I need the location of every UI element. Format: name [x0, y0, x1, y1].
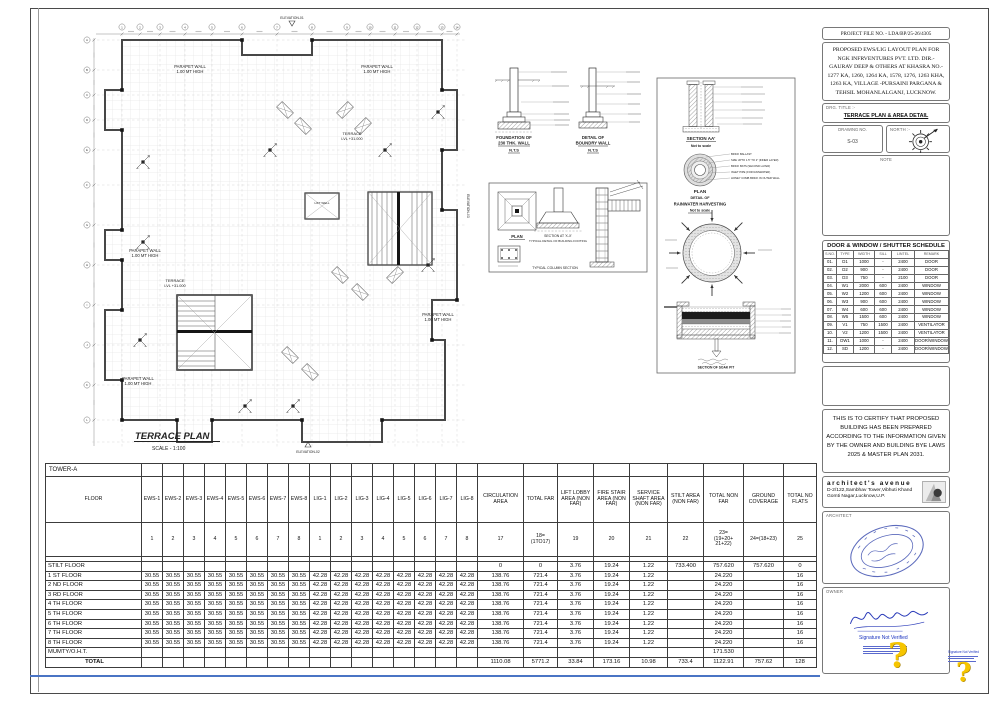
schedule-cell: 03. [824, 274, 837, 282]
unit-col-header: LIG-6 [415, 477, 436, 523]
unit-area-cell: 30.55 [142, 609, 163, 619]
unit-area-cell: 42.28 [331, 619, 352, 629]
unit-area-cell: 30.55 [184, 629, 205, 639]
unit-area-cell: 42.28 [331, 609, 352, 619]
note-label: NOTE [823, 157, 949, 162]
unit-col-header: EWS-3 [184, 477, 205, 523]
schedule-cell: 2400 [892, 314, 915, 322]
unit-area-cell: 30.55 [268, 590, 289, 600]
floor-name-cell: 8 TH FLOOR [46, 638, 142, 648]
svg-text:BRICK BALLAST: BRICK BALLAST [731, 152, 752, 156]
certification-box: THIS IS TO CERTIFY THAT PROPOSED BUILDIN… [822, 409, 950, 473]
unit-area-cell: 30.55 [205, 638, 226, 648]
drawing-no-box: DRAWING NO. S-03 [822, 125, 883, 153]
column-number-row: 12345678123456781718=(1TO17)1920212223=(… [46, 523, 817, 557]
summary-area-cell: 1.22 [630, 638, 668, 648]
unit-area-cell: 30.55 [268, 629, 289, 639]
summary-area-cell: 16 [784, 571, 817, 581]
summary-area-cell: 721.4 [524, 581, 558, 591]
summary-area-cell: 19.24 [594, 590, 630, 600]
unit-area-cell: 42.28 [436, 619, 457, 629]
unit-area-cell [415, 562, 436, 572]
summary-area-cell [668, 581, 704, 591]
schedule-cell: SD [837, 345, 854, 353]
unit-area-cell: 30.55 [268, 619, 289, 629]
summary-area-cell: 1.22 [630, 581, 668, 591]
summary-area-cell: 19.24 [594, 629, 630, 639]
schedule-cell: DOOR [915, 266, 949, 274]
summary-area-cell: 138.76 [478, 590, 524, 600]
floor-name-cell: 1 ST FLOOR [46, 571, 142, 581]
unit-area-cell: 30.55 [142, 600, 163, 610]
unit-area-cell: 30.55 [163, 619, 184, 629]
unit-area-cell: 42.28 [352, 571, 373, 581]
unit-area-cell: 42.28 [457, 590, 478, 600]
unit-area-cell: 30.55 [226, 629, 247, 639]
summary-area-cell: 173.16 [594, 657, 630, 667]
unit-col-number: 8 [289, 523, 310, 557]
project-description-box: PROPOSED EWS/LIG LAYOUT PLAN FOR NGK INF… [822, 42, 950, 101]
schedule-row: 02.D2900-2400DOOR [824, 266, 949, 274]
unit-area-cell: 42.28 [352, 629, 373, 639]
unit-area-cell [436, 657, 457, 667]
summary-area-cell [668, 638, 704, 648]
summary-area-cell [668, 619, 704, 629]
unit-area-cell: 42.28 [373, 629, 394, 639]
unit-area-cell [436, 562, 457, 572]
floor-name-cell: 4 TH FLOOR [46, 600, 142, 610]
unit-area-cell: 30.55 [226, 600, 247, 610]
area-col-header: TOTAL NON FAR [704, 477, 744, 523]
svg-text:DETAIL OF: DETAIL OF [582, 135, 605, 140]
unit-area-cell [184, 562, 205, 572]
unit-area-cell: 42.28 [310, 609, 331, 619]
summary-area-cell [478, 648, 524, 658]
unit-area-cell: 30.55 [289, 571, 310, 581]
summary-area-cell: 138.76 [478, 609, 524, 619]
area-row: MUMTY/O.H.T.171.530 [46, 648, 817, 658]
unit-area-cell: 30.55 [226, 638, 247, 648]
summary-area-cell [668, 629, 704, 639]
rainwater-harvesting-panel: SECTION AA' Not to scale BRICK BALLAST S… [657, 78, 795, 373]
unit-col-header: LIG-3 [352, 477, 373, 523]
schedule-cell: 1500 [875, 322, 892, 330]
summary-area-cell: 24.220 [704, 638, 744, 648]
unit-area-cell [205, 648, 226, 658]
unit-area-cell: 30.55 [289, 629, 310, 639]
summary-area-cell: 16 [784, 581, 817, 591]
schedule-cell: 2400 [892, 298, 915, 306]
unit-area-cell: 42.28 [457, 638, 478, 648]
summary-area-cell [744, 571, 784, 581]
svg-text:1.00 MT HIGH: 1.00 MT HIGH [125, 381, 152, 386]
area-row: 8 TH FLOOR30.5530.5530.5530.5530.5530.55… [46, 638, 817, 648]
project-description: PROPOSED EWS/LIG LAYOUT PLAN FOR NGK INF… [823, 43, 949, 97]
unit-area-cell: 30.55 [163, 629, 184, 639]
unit-area-cell [457, 562, 478, 572]
summary-area-cell: 3.76 [558, 638, 594, 648]
unit-area-cell: 30.55 [205, 619, 226, 629]
summary-area-cell: 1.22 [630, 590, 668, 600]
unit-area-cell: 30.55 [226, 581, 247, 591]
unit-area-cell: 30.55 [226, 590, 247, 600]
unit-area-cell: 30.55 [289, 581, 310, 591]
unit-area-cell: 30.55 [184, 571, 205, 581]
unit-area-cell [247, 657, 268, 667]
summary-area-cell [524, 648, 558, 658]
summary-area-cell [668, 571, 704, 581]
summary-area-cell: 16 [784, 619, 817, 629]
summary-area-cell: 16 [784, 600, 817, 610]
column-header-row: FLOOREWS-1EWS-2EWS-3EWS-4EWS-5EWS-6EWS-7… [46, 477, 817, 523]
svg-text:PLAN: PLAN [511, 234, 522, 239]
schedule-cell: 1000 [854, 337, 875, 345]
project-file-box: PROJECT FILE NO. - LDA/BP/25-26/4305 [822, 27, 950, 40]
floor-name-cell: 7 TH FLOOR [46, 629, 142, 639]
schedule-row: 05.W212006002400WINDOW [824, 290, 949, 298]
summary-area-cell: 138.76 [478, 600, 524, 610]
area-row: 6 TH FLOOR30.5530.5530.5530.5530.5530.55… [46, 619, 817, 629]
unit-area-cell: 42.28 [436, 638, 457, 648]
unit-area-cell: 30.55 [247, 629, 268, 639]
unit-area-cell: 42.28 [331, 600, 352, 610]
unit-area-cell: 30.55 [268, 581, 289, 591]
summary-area-cell: 16 [784, 590, 817, 600]
tower-label: TOWER-A [46, 464, 142, 477]
schedule-cell: D1 [837, 258, 854, 266]
unit-area-cell: 42.28 [436, 590, 457, 600]
schedule-cell: W5 [837, 314, 854, 322]
schedule-cell: 04. [824, 282, 837, 290]
schedule-cell: 600 [854, 306, 875, 314]
summary-area-cell: 757.62 [744, 657, 784, 667]
svg-text:BOUNDRY WALL: BOUNDRY WALL [576, 141, 611, 146]
svg-text:RAINWATER HARVESTING: RAINWATER HARVESTING [674, 202, 726, 207]
floor-name-cell: 6 TH FLOOR [46, 619, 142, 629]
unit-area-cell [373, 562, 394, 572]
area-col-number: 17 [478, 523, 524, 557]
unit-area-cell: 42.28 [457, 619, 478, 629]
svg-text:E: E [86, 148, 88, 152]
unit-area-cell: 30.55 [268, 609, 289, 619]
area-col-number: 25 [784, 523, 817, 557]
schedule-cell: 02. [824, 266, 837, 274]
area-row: 4 TH FLOOR30.5530.5530.5530.5530.5530.55… [46, 600, 817, 610]
svg-text:TERRACE: TERRACE [165, 278, 184, 283]
summary-area-cell: 757.620 [744, 562, 784, 572]
svg-text:1.00 MT HIGH: 1.00 MT HIGH [132, 253, 159, 258]
unit-area-cell: 42.28 [394, 600, 415, 610]
unit-area-cell: 42.28 [352, 609, 373, 619]
unit-area-cell: 42.28 [394, 638, 415, 648]
unit-area-cell: 42.28 [415, 600, 436, 610]
summary-area-cell: 138.76 [478, 581, 524, 591]
summary-area-cell [744, 619, 784, 629]
svg-text:LVL +31.000: LVL +31.000 [341, 137, 362, 141]
summary-area-cell: 0 [524, 562, 558, 572]
area-col-header: GROUND COVERAGE [744, 477, 784, 523]
unit-area-cell [268, 657, 289, 667]
architect-box: ARCHITECT [822, 511, 950, 584]
summary-area-cell [668, 600, 704, 610]
unit-area-cell [331, 657, 352, 667]
unit-area-cell [352, 657, 373, 667]
schedule-cell: 2400 [892, 345, 915, 353]
unit-area-cell: 30.55 [163, 638, 184, 648]
summary-area-cell: 1.22 [630, 619, 668, 629]
unit-area-cell: 42.28 [331, 629, 352, 639]
unit-col-number: 8 [457, 523, 478, 557]
unit-area-cell: 30.55 [184, 581, 205, 591]
unit-area-cell: 42.28 [310, 571, 331, 581]
svg-text:1.00 MT HIGH: 1.00 MT HIGH [364, 69, 391, 74]
certification-text: THIS IS TO CERTIFY THAT PROPOSED BUILDIN… [823, 410, 949, 460]
schedule-cell: 1000 [854, 258, 875, 266]
unit-area-cell [142, 657, 163, 667]
svg-text:1.00 MT HIGH: 1.00 MT HIGH [177, 69, 204, 74]
schedule-row: 10.V2120015002400VENTILATOR [824, 329, 949, 337]
summary-area-cell: 19.24 [594, 600, 630, 610]
schedule-cell: 2400 [892, 329, 915, 337]
unit-col-number: 6 [247, 523, 268, 557]
unit-area-cell: 42.28 [457, 629, 478, 639]
digital-signature-question-icon: ? [888, 636, 908, 676]
summary-area-cell [744, 638, 784, 648]
plan-title-group: TERRACE PLAN SCALE - 1:100 [134, 431, 220, 452]
unit-area-cell: 30.55 [289, 609, 310, 619]
lift-well: LIFT WELL [305, 193, 339, 219]
schedule-cell: 2400 [892, 306, 915, 314]
floor-col-header: FLOOR [46, 477, 142, 523]
area-col-header: STILT AREA (NON FAR) [668, 477, 704, 523]
unit-area-cell [163, 648, 184, 658]
unit-area-cell: 42.28 [394, 629, 415, 639]
unit-area-cell: 30.55 [205, 600, 226, 610]
svg-text:HONEY COMB BRICK IN OUTER WALL: HONEY COMB BRICK IN OUTER WALL [731, 176, 780, 180]
schedule-cell: 600 [875, 290, 892, 298]
summary-area-cell [744, 609, 784, 619]
unit-area-cell: 30.55 [142, 590, 163, 600]
schedule-header-row: S.NO.TYPEWIDTHSILLLINTELREMARK [824, 251, 949, 259]
svg-text:A: A [86, 38, 88, 42]
project-file-no: PROJECT FILE NO. - LDA/BP/25-26/4305 [823, 28, 949, 40]
schedule-cell: 600 [875, 306, 892, 314]
summary-area-cell: 24.220 [704, 590, 744, 600]
area-row: STILT FLOOR003.7619.241.22733.400757.620… [46, 562, 817, 572]
schedule-cell: - [875, 337, 892, 345]
schedule-cell: 1200 [854, 290, 875, 298]
area-col-number: 22 [668, 523, 704, 557]
summary-area-cell: 16 [784, 638, 817, 648]
area-col-number: 24=(18+23) [744, 523, 784, 557]
summary-area-cell: 19.24 [594, 562, 630, 572]
unit-area-cell [226, 562, 247, 572]
summary-area-cell: 24.220 [704, 609, 744, 619]
architect-stamp [837, 520, 937, 582]
unit-area-cell: 42.28 [415, 619, 436, 629]
unit-col-number: 7 [268, 523, 289, 557]
schedule-cell: 07. [824, 306, 837, 314]
unit-col-header: LIG-8 [457, 477, 478, 523]
unit-area-cell: 42.28 [457, 600, 478, 610]
schedule-cell: - [875, 266, 892, 274]
drg-title-label: DRG. TITLE :- [826, 105, 855, 110]
unit-col-header: EWS-5 [226, 477, 247, 523]
schedule-row: 09.V175015002400VENTILATOR [824, 322, 949, 330]
schedule-cell: DOOR [915, 274, 949, 282]
unit-area-cell: 42.28 [310, 600, 331, 610]
unit-area-cell: 30.55 [184, 638, 205, 648]
sheet-bottom-rule [30, 675, 820, 677]
svg-text:TYPICAL DETAIL OF BUILDING FOO: TYPICAL DETAIL OF BUILDING FOOTING [529, 239, 588, 243]
unit-area-cell: 30.55 [268, 571, 289, 581]
summary-area-cell: 171.530 [704, 648, 744, 658]
schedule-cell: 05. [824, 290, 837, 298]
unit-area-cell: 30.55 [247, 581, 268, 591]
unit-area-cell: 30.55 [163, 609, 184, 619]
north-compass-icon [905, 127, 945, 153]
unit-area-cell: 42.28 [415, 609, 436, 619]
unit-area-cell: 42.28 [373, 638, 394, 648]
unit-area-cell: 42.28 [310, 619, 331, 629]
drawing-no-value: S-03 [823, 139, 882, 145]
summary-area-cell [558, 648, 594, 658]
unit-area-cell [205, 657, 226, 667]
unit-area-cell: 42.28 [310, 629, 331, 639]
elevation-01-label: ELEVATION-01 [280, 16, 304, 20]
schedule-cell: 600 [875, 314, 892, 322]
unit-area-cell: 30.55 [268, 600, 289, 610]
summary-area-cell: 733.400 [668, 562, 704, 572]
summary-area-cell: 5771.2 [524, 657, 558, 667]
unit-area-cell: 42.28 [352, 600, 373, 610]
area-col-number: 23=(19+20+21+22) [704, 523, 744, 557]
area-row: 7 TH FLOOR30.5530.5530.5530.5530.5530.55… [46, 629, 817, 639]
unit-area-cell: 30.55 [184, 609, 205, 619]
unit-col-number: 5 [394, 523, 415, 557]
drawing-no-label: DRAWING NO. [823, 127, 882, 132]
unit-col-number: 4 [373, 523, 394, 557]
unit-area-cell: 42.28 [373, 590, 394, 600]
unit-area-cell [184, 657, 205, 667]
summary-area-cell: 733.4 [668, 657, 704, 667]
summary-area-cell [594, 648, 630, 658]
schedule-cell: 750 [854, 274, 875, 282]
schedule-cell: 2400 [892, 258, 915, 266]
summary-area-cell [744, 600, 784, 610]
schedule-cell: WINDOW [915, 298, 949, 306]
schedule-cell: VENTILATOR [915, 322, 949, 330]
unit-area-cell: 30.55 [247, 590, 268, 600]
schedule-row: 08.W515006002400WINDOW [824, 314, 949, 322]
summary-area-cell: 3.76 [558, 619, 594, 629]
unit-area-cell: 30.55 [205, 581, 226, 591]
drg-title-box: DRG. TITLE :- TERRACE PLAN & AREA DETAIL [822, 103, 950, 123]
unit-area-cell [415, 657, 436, 667]
schedule-cell: 2400 [892, 266, 915, 274]
unit-area-cell [184, 648, 205, 658]
schedule-cell: 10. [824, 329, 837, 337]
revision-box [822, 366, 950, 406]
unit-area-cell: 30.55 [205, 609, 226, 619]
schedule-cell: 06. [824, 298, 837, 306]
unit-area-cell [373, 657, 394, 667]
note-box: NOTE [822, 155, 950, 236]
unit-area-cell: 42.28 [310, 581, 331, 591]
summary-area-cell: 1.22 [630, 571, 668, 581]
stair-core-a [177, 295, 252, 370]
unit-col-number: 5 [226, 523, 247, 557]
schedule-cell: 600 [875, 298, 892, 306]
area-row: 2 ND FLOOR30.5530.5530.5530.5530.5530.55… [46, 581, 817, 591]
summary-area-cell [668, 590, 704, 600]
unit-area-cell: 42.28 [415, 629, 436, 639]
unit-area-cell [415, 648, 436, 658]
summary-area-cell: 3.76 [558, 600, 594, 610]
unit-col-header: LIG-7 [436, 477, 457, 523]
unit-area-cell: 30.55 [163, 590, 184, 600]
unit-area-cell: 30.55 [184, 619, 205, 629]
firm-logo [922, 481, 946, 503]
schedule-cell: 2100 [892, 274, 915, 282]
unit-col-header: EWS-8 [289, 477, 310, 523]
summary-area-cell: 19.24 [594, 638, 630, 648]
schedule-cell: WINDOW [915, 290, 949, 298]
owner-box: OWNER Signature Not Verified [822, 587, 950, 674]
unit-area-cell [289, 657, 310, 667]
summary-area-cell: 0 [784, 562, 817, 572]
summary-area-cell: 24.220 [704, 581, 744, 591]
schedule-cell: 900 [854, 298, 875, 306]
north-box: NORTH :- [886, 125, 950, 153]
schedule-cell: W1 [837, 282, 854, 290]
schedule-row: 04.W120006002400WINDOW [824, 282, 949, 290]
schedule-row: 12.SD1200-2400DOOR/WINDOW [824, 345, 949, 353]
svg-text:B: B [86, 68, 88, 72]
unit-area-cell: 30.55 [163, 581, 184, 591]
unit-area-cell: 42.28 [352, 590, 373, 600]
stair-core-b [368, 192, 432, 265]
schedule-cell: DW1 [837, 337, 854, 345]
unit-area-cell [142, 648, 163, 658]
unit-col-number: 3 [184, 523, 205, 557]
svg-text:D: D [86, 118, 88, 122]
schedule-cell: 12. [824, 345, 837, 353]
summary-area-cell: 721.4 [524, 629, 558, 639]
svg-text:Not to scale: Not to scale [690, 209, 710, 213]
schedule-cell: 1500 [875, 329, 892, 337]
unit-area-cell [394, 648, 415, 658]
area-col-header: TOTAL NO FLATS [784, 477, 817, 523]
sheet-margin-line [38, 8, 39, 692]
svg-text:Not to scale: Not to scale [691, 144, 711, 148]
svg-text:BRICK BATS (SECOND LAYER): BRICK BATS (SECOND LAYER) [731, 164, 770, 168]
svg-text:TERRACE: TERRACE [342, 131, 361, 136]
summary-area-cell: 3.76 [558, 609, 594, 619]
unit-area-cell: 42.28 [331, 590, 352, 600]
summary-area-cell: 24.220 [704, 571, 744, 581]
unit-area-cell: 30.55 [205, 571, 226, 581]
schedule-col-header: LINTEL [892, 251, 915, 259]
schedule-cell: 1200 [854, 329, 875, 337]
plan-title: TERRACE PLAN [135, 431, 211, 442]
unit-area-cell: 42.28 [394, 619, 415, 629]
unit-area-cell [289, 562, 310, 572]
unit-area-cell: 30.55 [142, 629, 163, 639]
area-col-number: 18=(1TO17) [524, 523, 558, 557]
area-row: 5 TH FLOOR30.5530.5530.5530.5530.5530.55… [46, 609, 817, 619]
unit-area-cell: 42.28 [415, 638, 436, 648]
